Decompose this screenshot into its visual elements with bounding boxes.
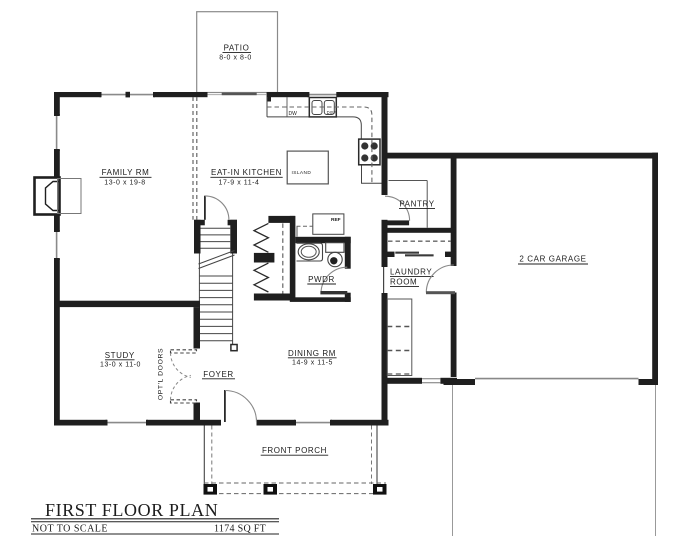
svg-text:13-0 x 19-8: 13-0 x 19-8 [104,179,145,186]
svg-text:PWDR: PWDR [308,275,335,284]
svg-text:REF: REF [331,217,341,223]
svg-text:ROOM: ROOM [390,277,417,286]
svg-text:DISP: DISP [327,110,337,115]
svg-text:FOYER: FOYER [203,370,234,379]
svg-text:PANTRY: PANTRY [399,200,434,209]
svg-text:OPT'L DOORS: OPT'L DOORS [158,348,165,400]
svg-text:14-9 x 11-5: 14-9 x 11-5 [292,360,333,367]
svg-text:2 CAR GARAGE: 2 CAR GARAGE [519,255,586,264]
svg-text:LAUNDRY: LAUNDRY [390,268,432,277]
svg-text:DW: DW [289,111,298,117]
svg-text:1174 SQ FT: 1174 SQ FT [214,524,266,535]
svg-text:EAT-IN KITCHEN: EAT-IN KITCHEN [211,168,282,177]
svg-text:STUDY: STUDY [105,351,135,360]
svg-text:FRONT PORCH: FRONT PORCH [262,446,327,455]
svg-text:13-0 x 11-0: 13-0 x 11-0 [100,362,141,369]
svg-text:ISLAND: ISLAND [292,170,312,176]
svg-text:FAMILY RM: FAMILY RM [102,168,150,177]
svg-text:NOT TO SCALE: NOT TO SCALE [32,524,108,535]
svg-text:8-0 x 8-0: 8-0 x 8-0 [219,55,252,62]
svg-text:PATIO: PATIO [224,44,250,53]
svg-text:DINING RM: DINING RM [288,349,336,358]
svg-text:17-9 x 11-4: 17-9 x 11-4 [219,179,260,186]
svg-text:FIRST FLOOR PLAN: FIRST FLOOR PLAN [45,500,218,520]
